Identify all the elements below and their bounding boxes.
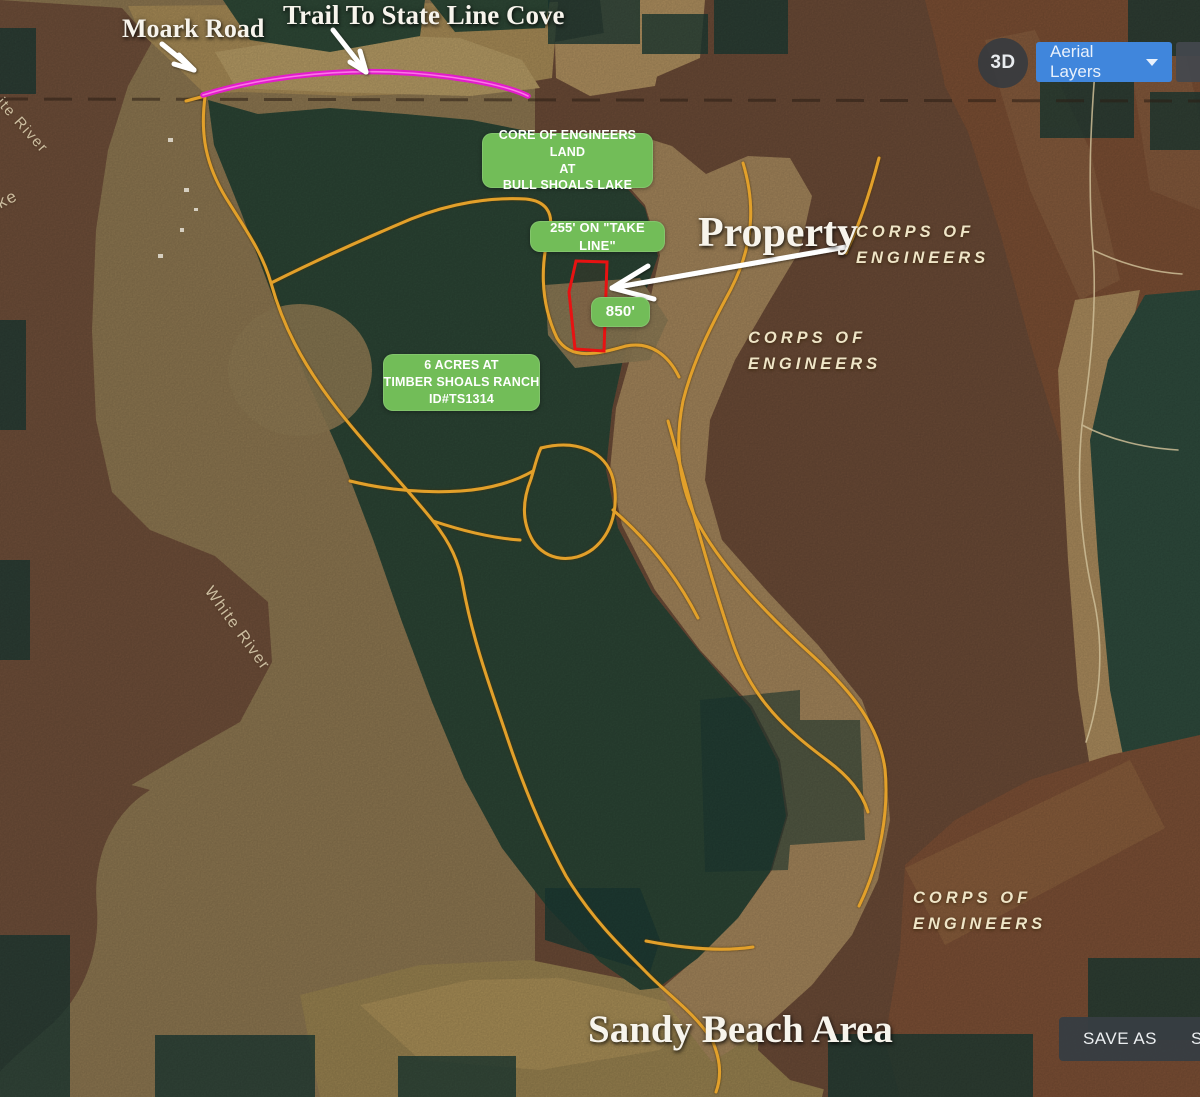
callout-core-of-engineers-land: CORE OF ENGINEERS LAND AT BULL SHOALS LA… xyxy=(482,133,653,188)
aerial-layers-label: Aerial Layers xyxy=(1050,42,1137,82)
moark-road-label: Moark Road xyxy=(122,16,264,42)
toolbar-button-partial[interactable] xyxy=(1176,42,1200,82)
corps-line2: ENGINEERS xyxy=(856,246,989,272)
save-as-button[interactable]: SAVE AS xyxy=(1059,1029,1181,1049)
callout-line: 6 ACRES AT xyxy=(383,357,540,374)
corps-line2: ENGINEERS xyxy=(748,352,881,378)
aerial-layers-dropdown[interactable]: Aerial Layers xyxy=(1036,42,1172,82)
save-as-button-partial[interactable]: SA xyxy=(1181,1029,1200,1049)
sandy-beach-area-label: Sandy Beach Area xyxy=(588,1010,893,1049)
property-label: Property xyxy=(698,212,858,254)
corps-of-engineers-label-3: CORPS OF ENGINEERS xyxy=(913,886,1046,937)
chevron-down-icon xyxy=(1146,59,1158,66)
callout-line: BULL SHOALS LAKE xyxy=(482,177,653,194)
corps-line1: CORPS OF xyxy=(856,220,989,246)
save-toolbar: SAVE AS SA xyxy=(1059,1017,1200,1061)
callout-850ft: 850' xyxy=(591,297,650,327)
callout-line: CORE OF ENGINEERS LAND xyxy=(482,127,653,161)
callout-line: TIMBER SHOALS RANCH xyxy=(383,374,540,391)
callout-line: 255' ON "TAKE LINE" xyxy=(530,219,665,254)
callout-take-line-255: 255' ON "TAKE LINE" xyxy=(530,221,665,252)
corps-of-engineers-label-1: CORPS OF ENGINEERS xyxy=(856,220,989,271)
view-3d-button[interactable]: 3D xyxy=(978,38,1028,88)
map-app-window: Moark Road Trail To State Line Cove Prop… xyxy=(0,0,1200,1097)
callout-6-acres: 6 ACRES AT TIMBER SHOALS RANCH ID#TS1314 xyxy=(383,354,540,411)
trail-to-state-line-cove-label: Trail To State Line Cove xyxy=(283,2,565,29)
corps-line1: CORPS OF xyxy=(913,886,1046,912)
corps-of-engineers-label-2: CORPS OF ENGINEERS xyxy=(748,326,881,377)
callout-line: AT xyxy=(482,161,653,178)
corps-line1: CORPS OF xyxy=(748,326,881,352)
callout-line: 850' xyxy=(591,302,650,322)
callout-line: ID#TS1314 xyxy=(383,391,540,408)
corps-line2: ENGINEERS xyxy=(913,912,1046,938)
